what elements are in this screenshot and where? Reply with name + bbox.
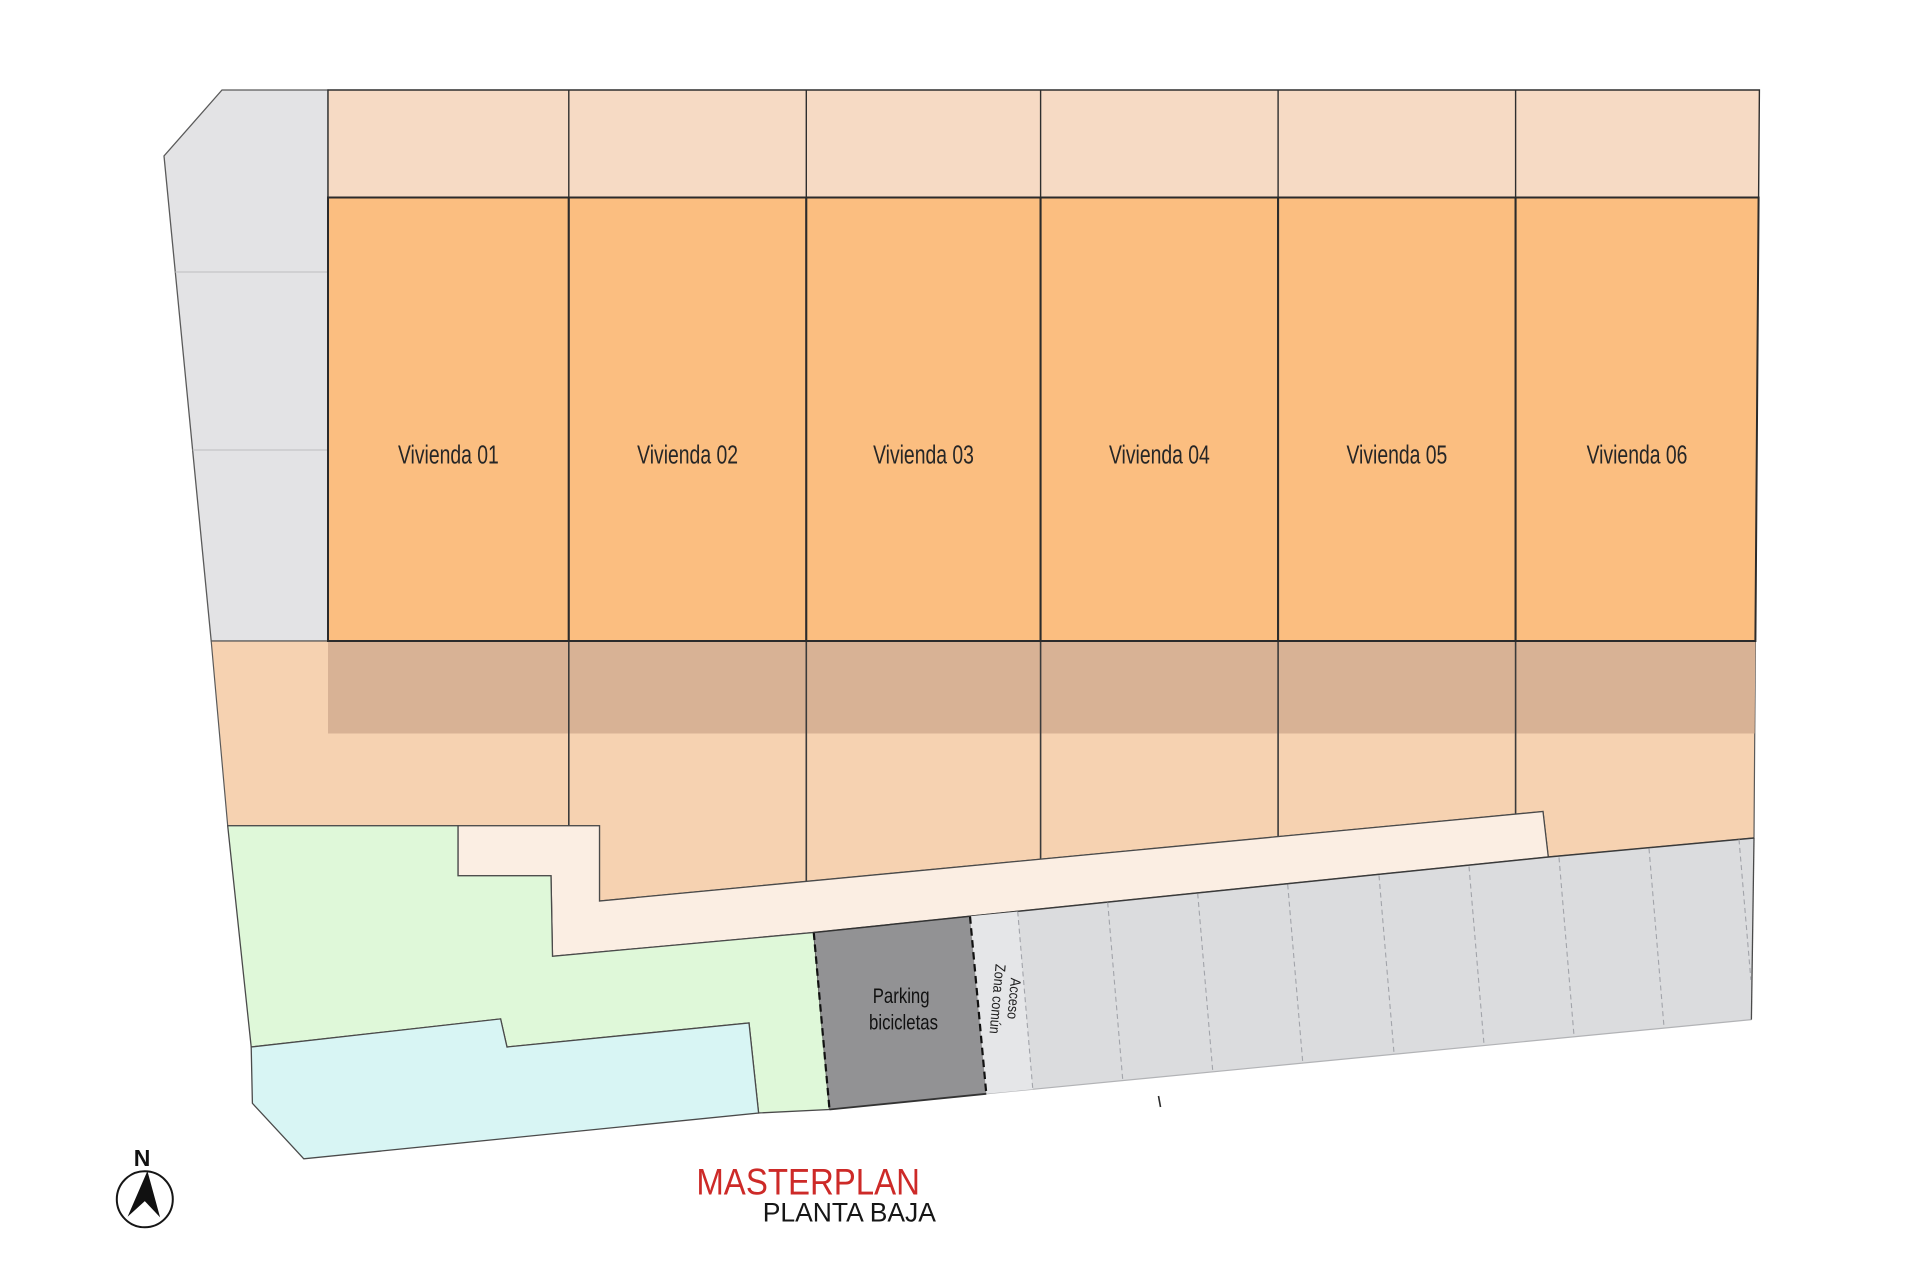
svg-text:Vivienda 05: Vivienda 05	[1346, 441, 1447, 469]
svg-text:Vivienda 02: Vivienda 02	[637, 441, 738, 469]
svg-text:Vivienda 06: Vivienda 06	[1587, 441, 1688, 469]
svg-text:Vivienda 04: Vivienda 04	[1109, 441, 1210, 469]
svg-text:Vivienda 03: Vivienda 03	[873, 441, 974, 469]
svg-text:N: N	[134, 1145, 151, 1171]
svg-text:PLANTA BAJA: PLANTA BAJA	[763, 1198, 937, 1228]
svg-text:Vivienda 01: Vivienda 01	[398, 441, 499, 469]
